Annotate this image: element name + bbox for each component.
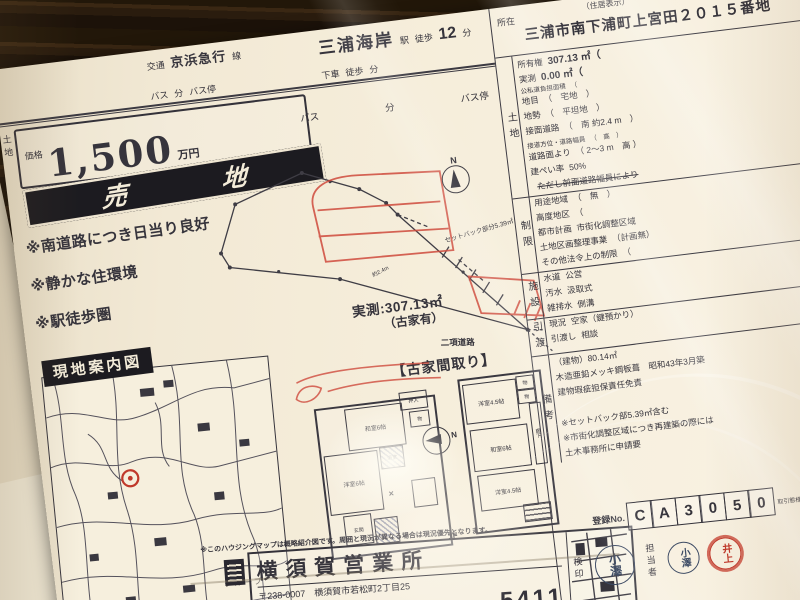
flyer-paper: 交通 京浜急行 線 バス 分 バス停 三浦海岸 駅 徒歩 12 分 [0,0,800,600]
compass-north: N [438,154,472,195]
walk-min-unit: 分 [462,25,473,39]
room-washitsu6: 和室6帖 [344,403,407,452]
getoff-label: 下車 [321,67,340,82]
bus-label: バス [150,88,169,103]
price-unit: 万円 [177,144,201,163]
person-stamp-2: 井上 [708,536,743,571]
registry-cell: 0 [747,487,776,518]
walk-minutes: 12 [438,24,458,44]
person-stamp-1: 小澤 [666,540,701,575]
room-2f-yoshitsu-top: 洋室4.5帖 [462,379,520,425]
room-mono: 物 [409,409,431,427]
traffic-table: 交通 京浜急行 線 バス 分 バス停 三浦海岸 駅 徒歩 12 分 [141,12,490,106]
photo-frame: 交通 京浜急行 線 バス 分 バス停 三浦海岸 駅 徒歩 12 分 [0,0,800,600]
price-label: 価格 [24,148,43,163]
traffic-label: 交通 [146,58,165,73]
rail-line-unit: 線 [231,49,242,63]
room-kitchen-block [411,477,438,508]
bus-min-unit: 分 [173,86,184,100]
room-oshiire: 押入 [398,389,428,410]
room-yoshitsu6: 洋室6帖 [324,450,385,516]
person-label: 担当者 [643,543,660,580]
check-stamp: 小澤 [593,543,637,587]
getoff-min-unit: 分 [368,62,379,76]
registry-row: 登録No. C A 3 0 5 0 取引態様 [591,484,800,534]
check-label: 検印 [571,556,586,581]
sale-banner-char-1: 売 [102,175,127,215]
approval-row: 検印 小澤 担当者 小澤 井上 [570,532,743,590]
floorplan-compass-label: N [451,430,458,440]
location-label: 所在 [496,14,519,55]
room-2f-washitsu: 和室6帖 [469,423,532,472]
compass-icon [440,164,471,195]
station-name: 三浦海岸 [317,25,395,59]
station-unit: 駅 [399,33,410,47]
bus-stop-label: バス停 [188,82,216,98]
getoff-walk-label: 徒歩 [345,64,364,79]
floorplan-x-mark: × [388,488,394,499]
registry-label: 登録No. [592,510,626,526]
walk-label: 徒歩 [414,30,433,45]
rail-line-name: 京浜急行 [169,45,227,71]
registry-side-note: 取引態様 [777,494,800,505]
room-bath: 浴室 [379,445,406,470]
